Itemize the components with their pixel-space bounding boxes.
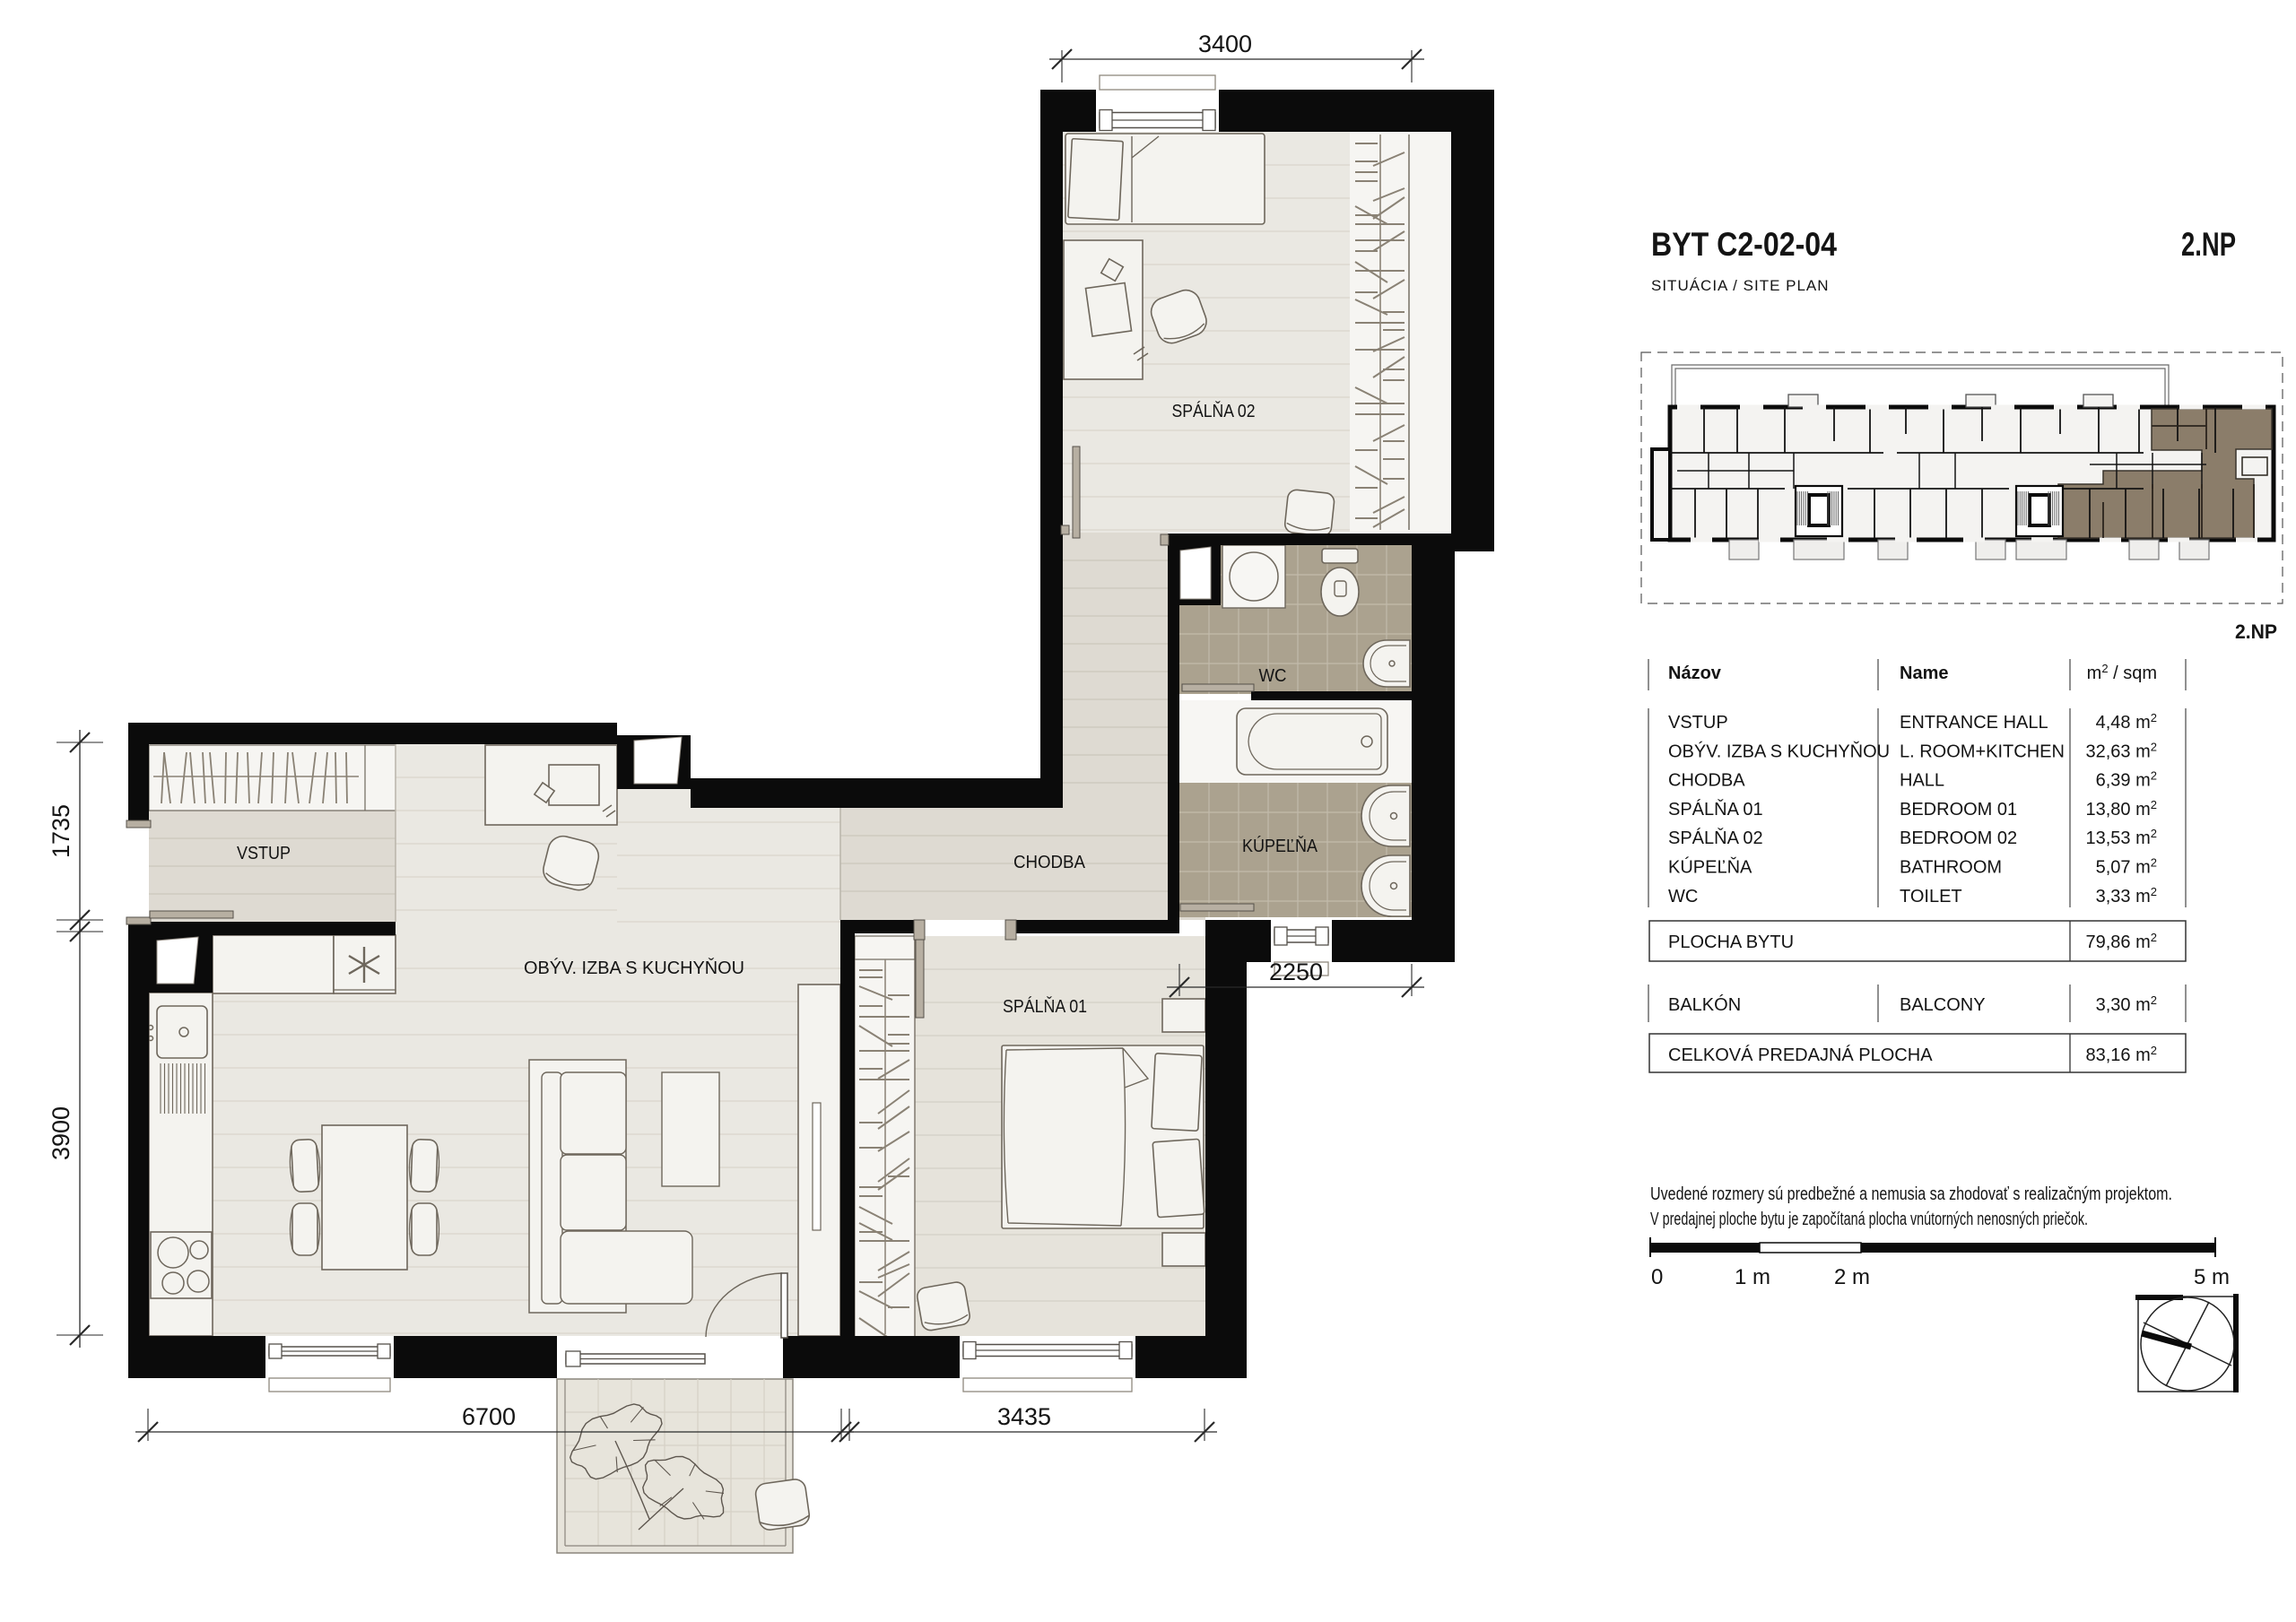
svg-text:TOILET: TOILET: [1900, 887, 1962, 906]
svg-text:1 m: 1 m: [1735, 1265, 1770, 1289]
svg-text:V predajnej ploche bytu je zap: V predajnej ploche bytu je započítaná pl…: [1650, 1210, 2088, 1229]
svg-text:79,86 m2: 79,86 m2: [2086, 931, 2158, 952]
svg-text:83,16 m2: 83,16 m2: [2086, 1044, 2158, 1065]
svg-text:32,63 m2: 32,63 m2: [2086, 740, 2158, 761]
svg-text:SPÁLŇA 02: SPÁLŇA 02: [1172, 401, 1256, 421]
svg-text:1735: 1735: [48, 804, 74, 858]
svg-text:4,48 m2: 4,48 m2: [2096, 711, 2157, 733]
svg-text:CHODBA: CHODBA: [1013, 853, 1086, 872]
svg-text:0: 0: [1651, 1265, 1663, 1289]
svg-text:OBÝV. IZBA S KUCHYŇOU: OBÝV. IZBA S KUCHYŇOU: [1668, 741, 1890, 761]
svg-text:SPÁLŇA 01: SPÁLŇA 01: [1003, 996, 1087, 1017]
svg-text:BATHROOM: BATHROOM: [1900, 858, 2002, 878]
svg-text:L. ROOM+KITCHEN: L. ROOM+KITCHEN: [1900, 742, 2065, 761]
svg-text:BALCONY: BALCONY: [1900, 995, 1986, 1015]
svg-text:SPÁLŇA 02: SPÁLŇA 02: [1668, 828, 1763, 848]
svg-text:BYT C2-02-04: BYT C2-02-04: [1651, 226, 1837, 263]
svg-text:KÚPEĽŇA: KÚPEĽŇA: [1668, 857, 1752, 878]
svg-text:HALL: HALL: [1900, 771, 1944, 791]
svg-text:3900: 3900: [48, 1106, 74, 1160]
svg-text:3,33 m2: 3,33 m2: [2096, 885, 2157, 906]
svg-text:PLOCHA BYTU: PLOCHA BYTU: [1668, 932, 1794, 952]
svg-text:3400: 3400: [1198, 30, 1252, 57]
svg-text:5,07 m2: 5,07 m2: [2096, 856, 2157, 878]
svg-text:6700: 6700: [462, 1403, 516, 1430]
svg-text:SITUÁCIA / SITE PLAN: SITUÁCIA / SITE PLAN: [1651, 277, 1830, 294]
svg-text:OBÝV. IZBA S KUCHYŇOU: OBÝV. IZBA S KUCHYŇOU: [524, 958, 744, 978]
svg-text:2 m: 2 m: [1834, 1265, 1870, 1289]
svg-text:VSTUP: VSTUP: [237, 844, 291, 863]
svg-text:CELKOVÁ PREDAJNÁ PLOCHA: CELKOVÁ PREDAJNÁ PLOCHA: [1668, 1045, 1933, 1065]
svg-text:Názov: Názov: [1668, 664, 1722, 683]
svg-text:5 m: 5 m: [2194, 1265, 2230, 1289]
svg-text:BALKÓN: BALKÓN: [1668, 994, 1741, 1015]
svg-text:2.NP: 2.NP: [2181, 226, 2236, 263]
svg-text:CHODBA: CHODBA: [1668, 771, 1745, 791]
svg-text:3,30 m2: 3,30 m2: [2096, 993, 2157, 1015]
svg-text:VSTUP: VSTUP: [1668, 713, 1728, 733]
svg-text:Name: Name: [1900, 664, 1948, 683]
svg-text:SPÁLŇA 01: SPÁLŇA 01: [1668, 799, 1763, 820]
svg-text:WC: WC: [1259, 666, 1287, 686]
svg-text:BEDROOM 01: BEDROOM 01: [1900, 800, 2017, 820]
svg-text:2250: 2250: [1269, 958, 1323, 985]
svg-text:Uvedené rozmery sú predbežné a: Uvedené rozmery sú predbežné a nemusia s…: [1650, 1184, 2172, 1204]
svg-text:3435: 3435: [997, 1403, 1051, 1430]
svg-text:ENTRANCE HALL: ENTRANCE HALL: [1900, 713, 2048, 733]
svg-text:WC: WC: [1668, 887, 1698, 906]
svg-text:KÚPEĽŇA: KÚPEĽŇA: [1242, 836, 1318, 856]
svg-text:13,80 m2: 13,80 m2: [2086, 798, 2158, 820]
svg-text:m2 / sqm: m2 / sqm: [2087, 662, 2157, 683]
svg-text:13,53 m2: 13,53 m2: [2086, 827, 2158, 848]
svg-text:BEDROOM 02: BEDROOM 02: [1900, 828, 2017, 848]
svg-text:6,39 m2: 6,39 m2: [2096, 769, 2157, 791]
svg-text:2.NP: 2.NP: [2235, 620, 2277, 643]
